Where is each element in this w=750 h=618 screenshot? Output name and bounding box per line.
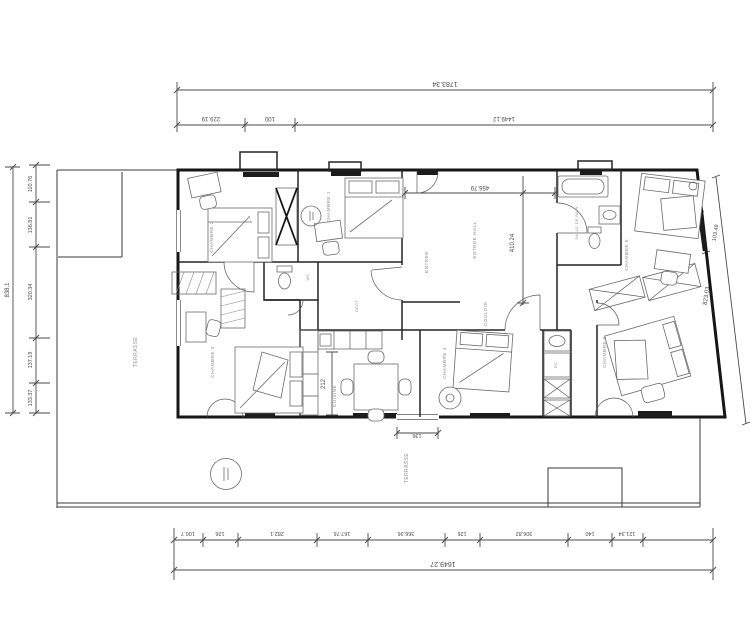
top-wall-box-1 [240, 152, 277, 170]
bed-chambre-4 [453, 330, 513, 392]
dim-top-seg2: 100 [264, 115, 275, 121]
dim-top-seg3: 1449.12 [493, 115, 515, 121]
bed-chambre-5 [635, 173, 706, 238]
dim-bottom-seg6: 126 [457, 530, 466, 536]
dim-left-seg2: 136.81 [28, 217, 34, 234]
toilet-bathroom [588, 227, 601, 249]
dim-bottom-seg4: 167.76 [334, 530, 351, 536]
circle-tiny-text [310, 211, 313, 221]
room-label-chambre-1: CHAMBRE 1 [326, 191, 332, 223]
room-label-terrasse-left: TERRASSE [133, 337, 139, 367]
bed-chambre-6 [605, 316, 691, 395]
room-label-chambre-2: CHAMBRE 2 [209, 221, 215, 253]
room-label-couloir: COULOIR [483, 302, 489, 327]
floor-plan-sheet: 1783.34 229.19 100 1449.12 838.1 110.76 … [0, 0, 750, 618]
utility-column [544, 331, 570, 416]
room-label-salle-de-bain: SALLE DE BAIN [574, 206, 579, 239]
dim-hall-width: 456.79 [470, 184, 489, 190]
dim-bottom-total: 1649.27 [430, 560, 455, 567]
bed-chambre-2 [208, 208, 272, 262]
room-label-chambre-5: CHAMBRE 5 [624, 239, 630, 271]
dim-bottom-seg5: 366.36 [398, 530, 415, 536]
dim-bottom-seg7: 306.82 [516, 530, 533, 536]
dim-top-seg1: 229.19 [201, 115, 220, 121]
dining-table [341, 351, 411, 421]
left-dimension-chain: 838.1 110.76 136.81 320.34 137.19 133.37 [5, 162, 50, 416]
dim-bottom-seg3: 282.1 [270, 530, 284, 536]
dim-door-width: 136 [412, 432, 421, 438]
dim-left-total: 838.1 [5, 282, 11, 298]
bottom-dimension-chain: 100.7 126 282.1 167.76 366.36 126 306.82… [171, 528, 716, 580]
desk-chambre-2 [188, 172, 224, 211]
furniture [186, 172, 705, 489]
room-label-chambre-4: CHAMBRE 4 [442, 347, 448, 379]
terrace-door-opening [396, 414, 439, 421]
toilet-wc [277, 266, 292, 289]
desk-chambre-1 [314, 220, 344, 256]
room-label-cuisine: CUISINE [332, 385, 338, 407]
dim-bottom-seg9: 121.34 [619, 530, 636, 536]
kitchen-units [300, 330, 411, 421]
dim-bottom-seg2: 126 [215, 530, 224, 536]
room-label-entree: ENTREE [424, 251, 430, 273]
room-label-degagement: DEGT [354, 300, 359, 313]
desk-chambre-5 [652, 250, 690, 287]
washbasin [599, 206, 620, 224]
hatched-wardrobe-2 [221, 289, 245, 328]
dim-top-total: 1783.34 [432, 80, 457, 87]
room-label-entree-hall: ENTREE HALL [472, 221, 478, 258]
desk-chambre-3 [186, 312, 222, 342]
dim-hall-depth: 410.24 [510, 233, 516, 252]
room-label-dc: DC [553, 362, 558, 368]
dim-left-seg1: 110.76 [28, 176, 34, 192]
dim-left-seg5: 133.37 [28, 390, 34, 407]
dressing-wardrobe-1 [589, 276, 645, 311]
dim-kitchen-width: 212 [321, 378, 327, 389]
x-closet-icon [276, 188, 297, 245]
top-dimension-chain: 1783.34 229.19 100 1449.12 [174, 80, 716, 132]
dim-left-seg3: 320.34 [28, 284, 34, 301]
room-label-chambre-6: CHAMBRE 6 [602, 336, 608, 368]
dim-bottom-seg8: 140 [585, 530, 594, 536]
dim-right-window: 103.48 [712, 224, 721, 242]
dim-left-seg4: 137.19 [28, 352, 34, 369]
terrace-circle [211, 459, 242, 490]
bed-chambre-3 [235, 347, 303, 413]
bed-chambre-1 [345, 178, 403, 238]
floor-plan-drawing: 1783.34 229.19 100 1449.12 838.1 110.76 … [0, 0, 750, 618]
side-table-chambre-4 [439, 387, 461, 409]
room-label-terrasse-bottom: TERRASSE [404, 453, 410, 483]
room-label-wc: WC [305, 273, 310, 280]
room-label-chambre-3: CHAMBRE 3 [210, 346, 216, 378]
dim-bottom-seg1: 100.7 [181, 530, 195, 536]
column-circle-chambre-1 [301, 206, 321, 226]
